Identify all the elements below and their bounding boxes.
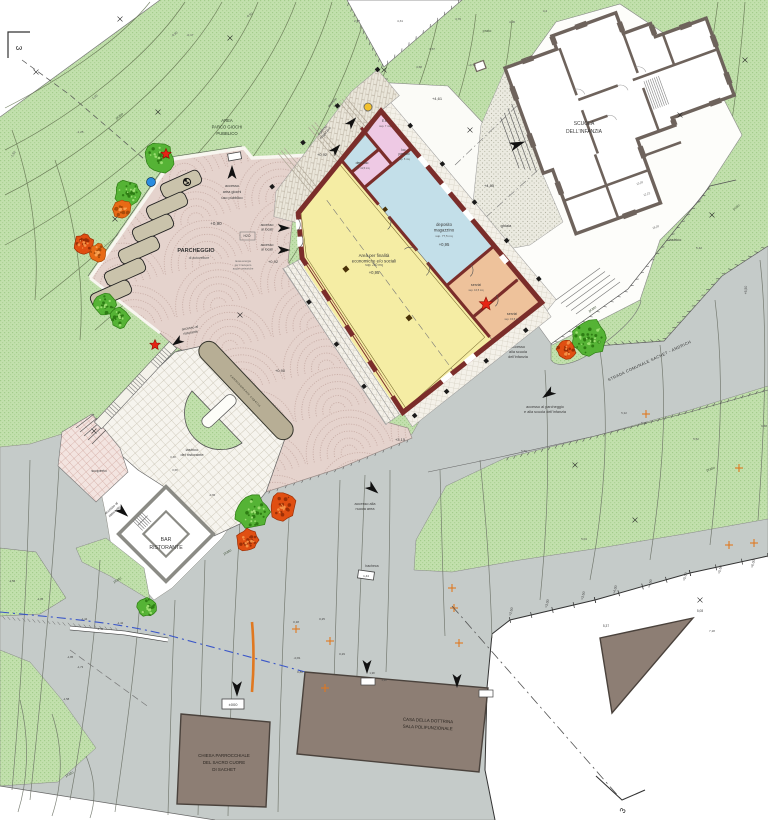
- svg-text:0,18: 0,18: [293, 620, 299, 624]
- svg-text:dell'infanzia: dell'infanzia: [508, 355, 529, 359]
- svg-text:deposito: deposito: [436, 222, 453, 227]
- svg-text:accesso: accesso: [261, 223, 274, 227]
- svg-text:DELL'INFANZIA: DELL'INFANZIA: [566, 129, 603, 135]
- svg-text:e alla scuola dell'infanzia: e alla scuola dell'infanzia: [524, 410, 567, 414]
- svg-text:3: 3: [14, 46, 23, 51]
- svg-text:sup. 5 mq: sup. 5 mq: [398, 157, 410, 161]
- svg-text:PARCO GIOCHI: PARCO GIOCHI: [212, 125, 243, 130]
- svg-text:0,48: 0,48: [170, 455, 176, 459]
- svg-text:uso pubblico: uso pubblico: [221, 196, 242, 200]
- svg-text:1,10: 1,10: [381, 678, 387, 682]
- svg-text:accesso alla: accesso alla: [355, 502, 377, 506]
- svg-text:+0,90: +0,90: [210, 221, 222, 226]
- svg-text:-2,56: -2,56: [9, 579, 16, 583]
- svg-text:+4,61: +4,61: [432, 96, 443, 101]
- svg-text:+5,50: +5,50: [744, 286, 748, 295]
- svg-text:0,68: 0,68: [172, 468, 178, 472]
- svg-text:5,32: 5,32: [621, 411, 627, 415]
- svg-text:+0,95: +0,95: [369, 270, 380, 275]
- svg-text:area giochi: area giochi: [223, 190, 242, 194]
- svg-text:5,42: 5,42: [696, 246, 702, 250]
- svg-text:5,04: 5,04: [581, 537, 587, 541]
- svg-text:scoperto: scoperto: [91, 468, 107, 473]
- svg-text:-1,25: -1,25: [76, 130, 83, 134]
- svg-text:nuova area: nuova area: [356, 507, 376, 511]
- svg-text:+0,92: +0,92: [268, 259, 279, 264]
- svg-text:servizi: servizi: [507, 312, 517, 316]
- svg-text:del ristorante: del ristorante: [180, 452, 204, 457]
- svg-text:bacheca: bacheca: [365, 564, 378, 568]
- svg-text:CHIESA PARROCCHIALE: CHIESA PARROCCHIALE: [198, 753, 250, 758]
- svg-text:4,68: 4,68: [416, 65, 422, 69]
- svg-text:-0,86: -0,86: [209, 493, 216, 497]
- svg-text:+0,90: +0,90: [275, 368, 286, 373]
- svg-text:4,76: 4,76: [455, 17, 461, 21]
- svg-text:1,44: 1,44: [363, 574, 369, 578]
- svg-text:accesso: accesso: [225, 184, 239, 188]
- svg-text:DEL SACRO CUORE: DEL SACRO CUORE: [203, 760, 245, 765]
- svg-text:5,08: 5,08: [697, 609, 703, 613]
- svg-text:accesso al parcheggio: accesso al parcheggio: [526, 405, 564, 409]
- svg-text:+0,95: +0,95: [439, 242, 450, 247]
- svg-text:deposito: deposito: [356, 161, 369, 165]
- svg-text:accesso: accesso: [261, 243, 274, 247]
- svg-text:AREA: AREA: [221, 118, 233, 123]
- svg-text:-1,44: -1,44: [81, 617, 88, 621]
- svg-text:di autovetture: di autovetture: [189, 256, 210, 260]
- svg-text:ghiaia: ghiaia: [501, 223, 512, 228]
- svg-text:1,38: 1,38: [369, 671, 375, 675]
- svg-text:pannelli: pannelli: [399, 152, 410, 156]
- svg-text:alla scuola: alla scuola: [509, 350, 528, 354]
- svg-text:PUBBLICO: PUBBLICO: [216, 131, 238, 136]
- svg-text:E.E.: E.E.: [382, 119, 388, 123]
- svg-text:+3,15: +3,15: [395, 437, 406, 442]
- svg-text:5,56: 5,56: [521, 449, 527, 453]
- svg-text:-1,85: -1,85: [67, 655, 74, 659]
- svg-text:4,31: 4,31: [397, 19, 403, 23]
- svg-text:7,28: 7,28: [709, 629, 715, 633]
- svg-text:sup. 11,5 mq: sup. 11,5 mq: [355, 166, 370, 170]
- svg-text:sup. 260 mq: sup. 260 mq: [365, 263, 383, 267]
- svg-text:per il recupero: per il recupero: [235, 263, 252, 267]
- svg-text:magazzino: magazzino: [434, 227, 455, 232]
- svg-text:DI SACHET: DI SACHET: [212, 767, 236, 772]
- svg-text:4,06: 4,06: [509, 20, 515, 24]
- svg-text:0,86: 0,86: [297, 670, 303, 674]
- svg-text:+4,85: +4,85: [484, 183, 495, 188]
- svg-text:-0,81: -0,81: [294, 656, 301, 660]
- svg-text:ai locali: ai locali: [261, 248, 273, 252]
- svg-text:-1,40: -1,40: [97, 627, 104, 631]
- svg-text:lavaa energia: lavaa energia: [235, 259, 251, 263]
- svg-text:servizi: servizi: [471, 283, 481, 287]
- svg-text:lastrico: lastrico: [669, 237, 682, 242]
- svg-text:+0,92: +0,92: [317, 152, 328, 157]
- svg-text:sup. 7 mq: sup. 7 mq: [379, 124, 391, 128]
- svg-text:4,57: 4,57: [429, 47, 435, 51]
- svg-text:-0,17: -0,17: [186, 33, 193, 37]
- svg-text:5,52: 5,52: [693, 437, 699, 441]
- svg-text:acque meteoriche: acque meteoriche: [233, 267, 254, 271]
- svg-text:PARCHEGGIO: PARCHEGGIO: [177, 248, 215, 254]
- svg-text:prato: prato: [483, 29, 492, 33]
- svg-text:-1,73: -1,73: [77, 665, 84, 669]
- svg-text:5,37: 5,37: [603, 624, 609, 628]
- svg-text:sup. 16,5 mq: sup. 16,5 mq: [469, 288, 485, 292]
- svg-text:-1,05: -1,05: [37, 597, 44, 601]
- svg-text:-1,42: -1,42: [117, 621, 124, 625]
- svg-text:±000: ±000: [229, 702, 239, 707]
- svg-text:ai locali: ai locali: [261, 228, 273, 232]
- svg-text:-1,58: -1,58: [63, 697, 70, 701]
- svg-text:Area per finalità: Area per finalità: [359, 253, 390, 258]
- svg-text:RISTORANTE: RISTORANTE: [149, 545, 183, 551]
- svg-text:sup. 77,5 mq: sup. 77,5 mq: [435, 234, 453, 238]
- svg-text:2,77: 2,77: [354, 19, 360, 23]
- svg-text:H2O: H2O: [244, 234, 251, 238]
- svg-text:sup. 15,5 mq: sup. 15,5 mq: [505, 317, 521, 321]
- svg-text:0,29: 0,29: [339, 652, 345, 656]
- svg-text:0,25: 0,25: [319, 617, 325, 621]
- svg-text:SCUOLA: SCUOLA: [574, 121, 595, 127]
- svg-text:6,68: 6,68: [761, 424, 767, 428]
- svg-text:4,4: 4,4: [543, 9, 548, 13]
- svg-text:5,76: 5,76: [641, 421, 647, 425]
- svg-text:BAR: BAR: [161, 537, 172, 543]
- svg-text:+0,75: +0,75: [468, 63, 476, 67]
